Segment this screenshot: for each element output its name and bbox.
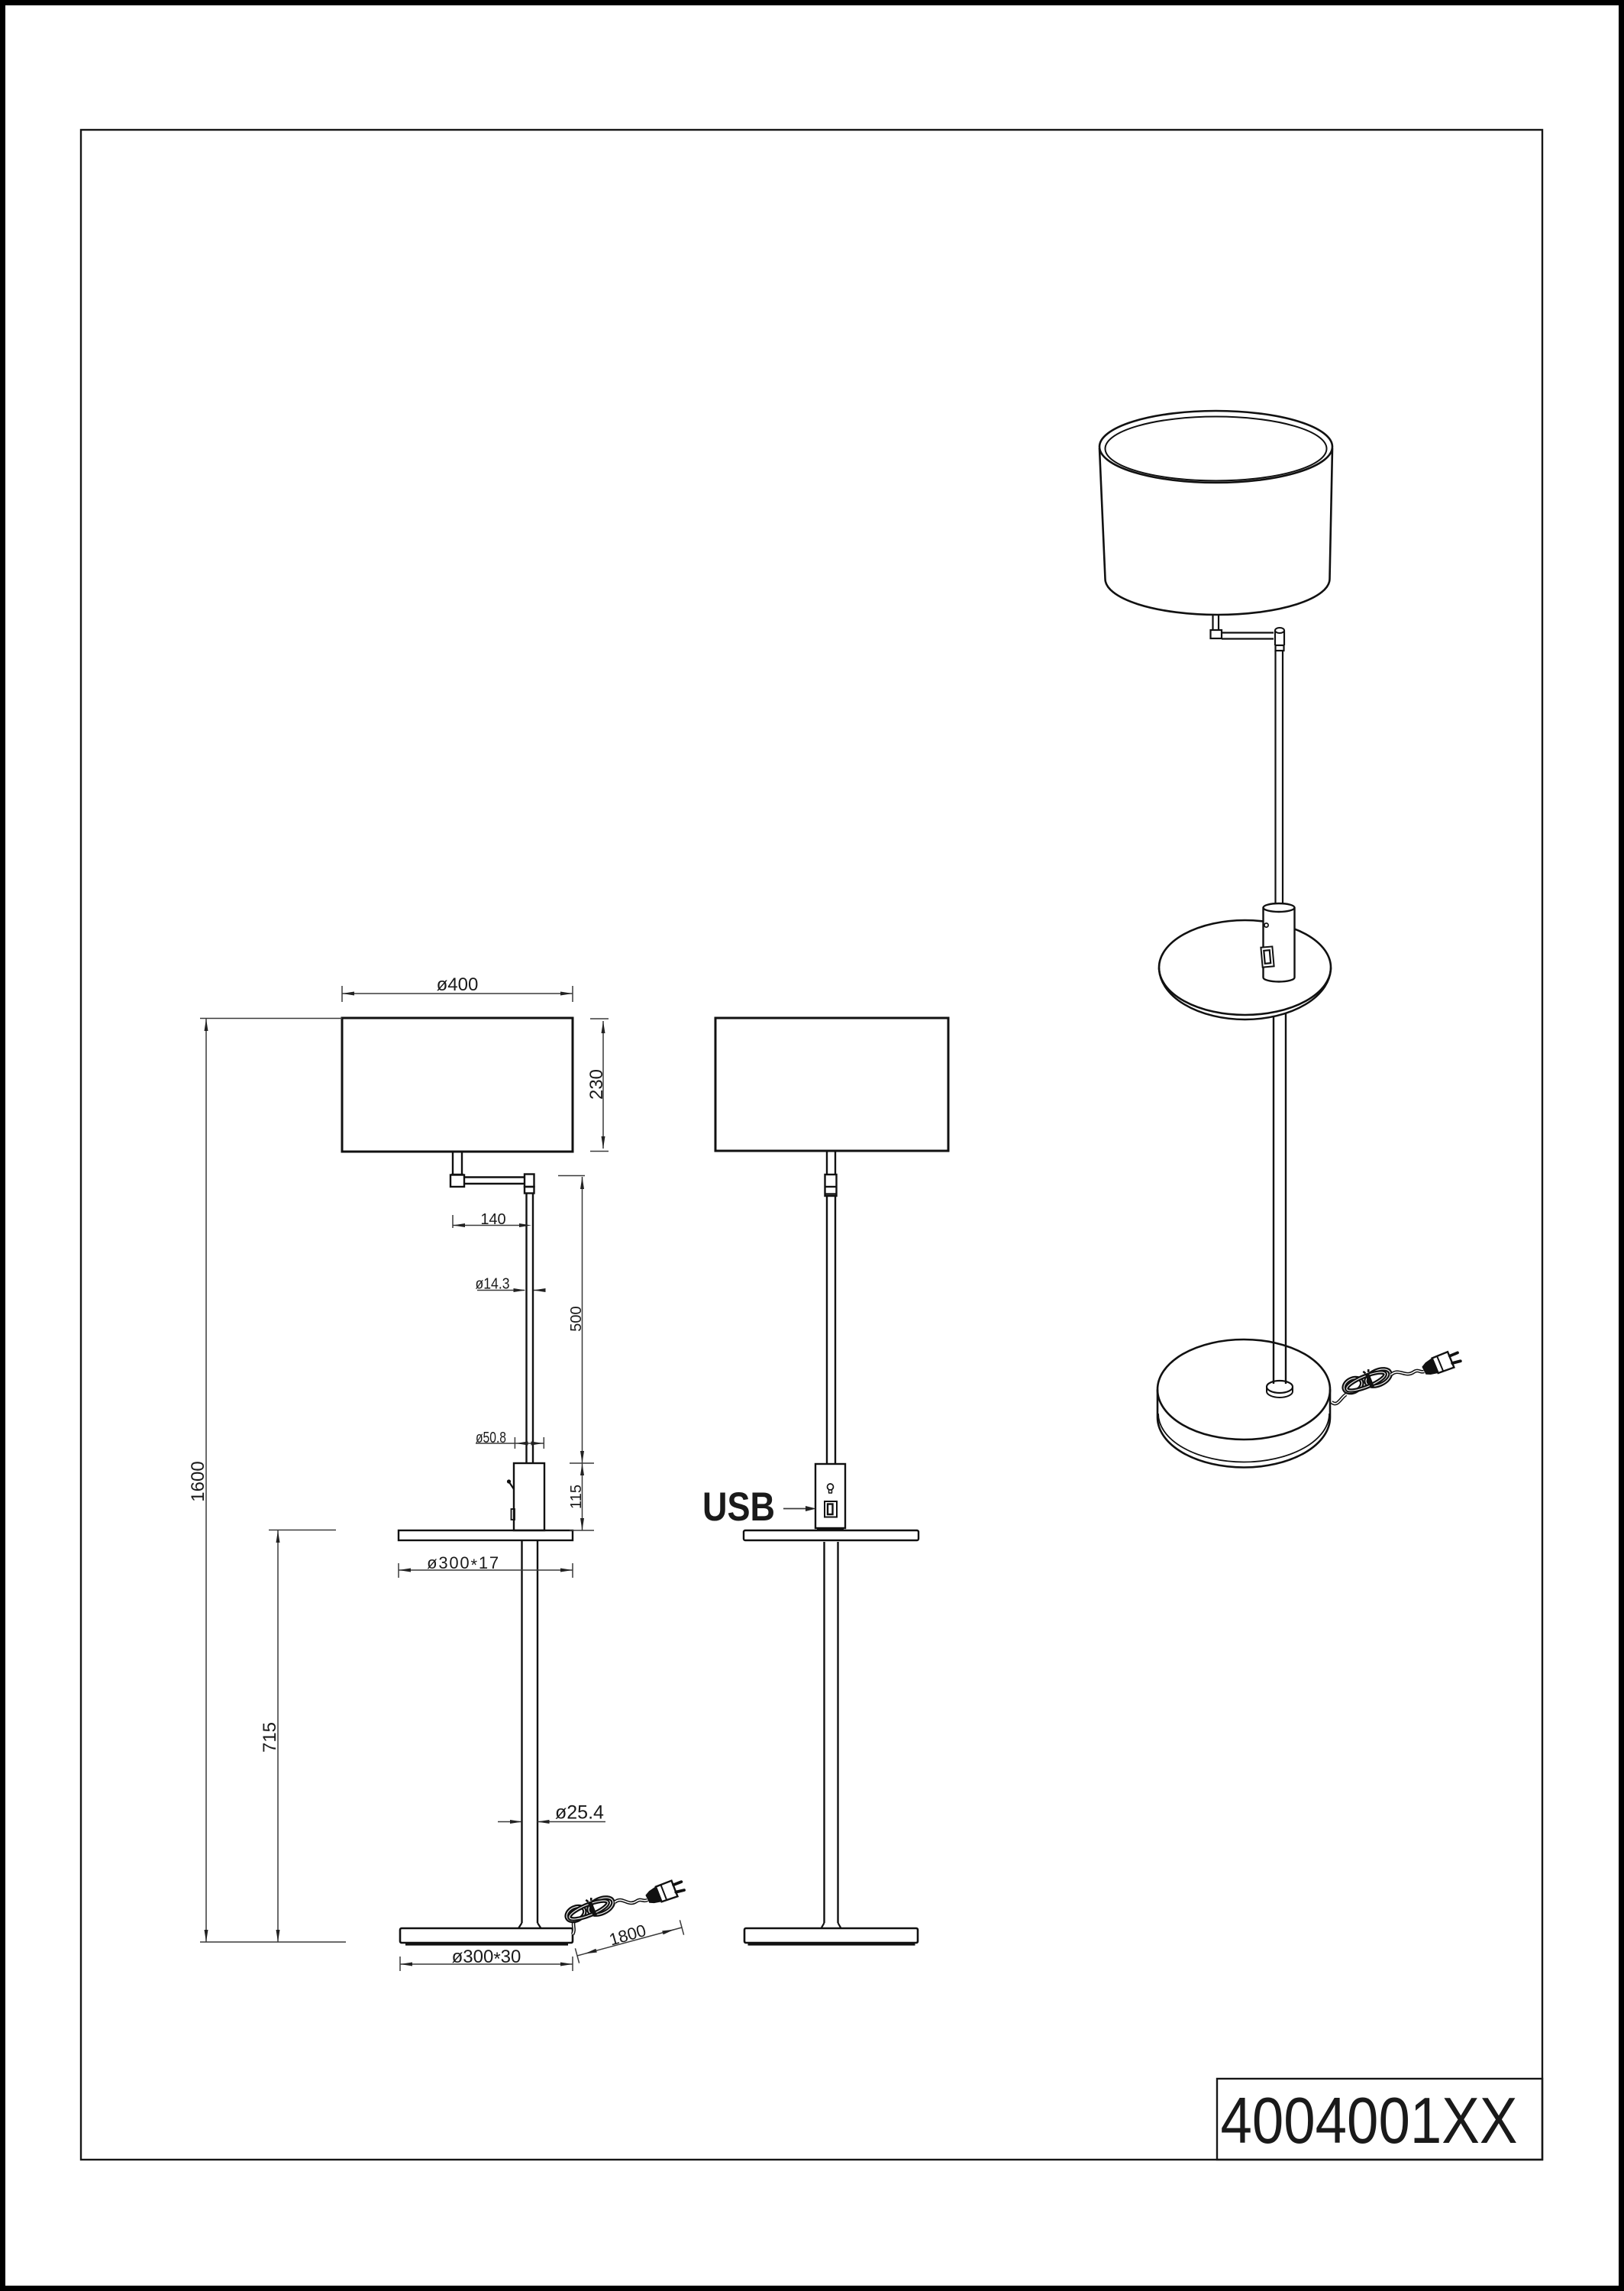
- svg-text:140: 140: [480, 1211, 505, 1228]
- svg-text:ø400: ø400: [437, 974, 479, 995]
- svg-text:ø25.4: ø25.4: [555, 1802, 604, 1824]
- svg-text:4004001XX: 4004001XX: [1221, 2085, 1518, 2157]
- svg-text:USB: USB: [702, 1485, 775, 1530]
- svg-text:230: 230: [586, 1069, 607, 1100]
- svg-text:500: 500: [568, 1306, 585, 1331]
- svg-text:ø300*17: ø300*17: [427, 1553, 500, 1575]
- svg-text:ø300*30: ø300*30: [452, 1947, 521, 1969]
- svg-text:715: 715: [260, 1722, 280, 1753]
- svg-text:ø14.3: ø14.3: [476, 1276, 510, 1293]
- svg-text:115: 115: [568, 1485, 585, 1509]
- svg-text:ø50.8: ø50.8: [476, 1430, 506, 1446]
- svg-text:1600: 1600: [188, 1461, 208, 1501]
